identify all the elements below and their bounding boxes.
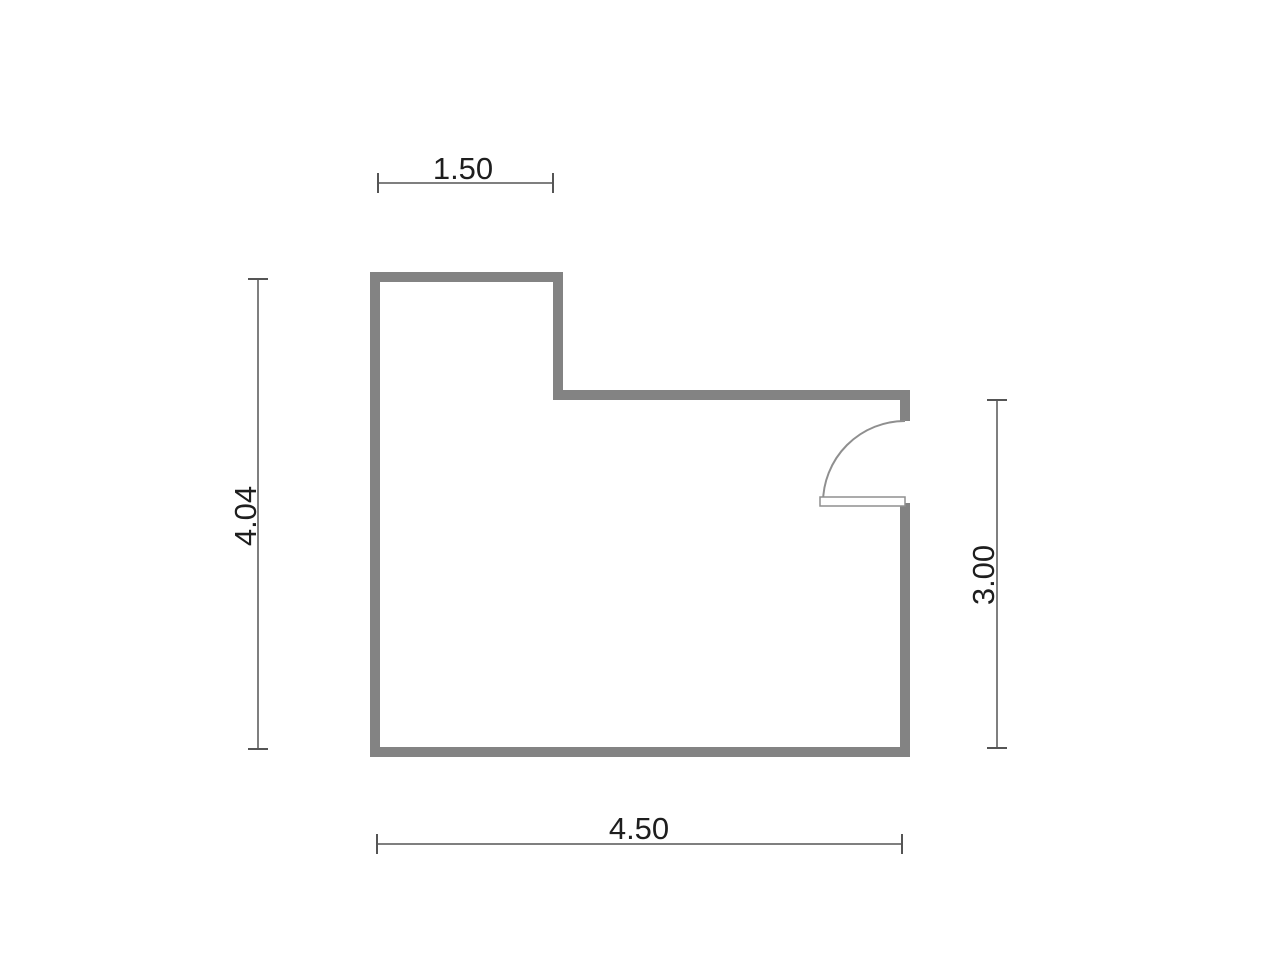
floorplan-canvas: 1.50 4.04 3.00 4.50 <box>0 0 1280 960</box>
dimension-top: 1.50 <box>378 151 553 193</box>
dimension-label-left: 4.04 <box>228 486 263 546</box>
floorplan-drawing: 1.50 4.04 3.00 4.50 <box>0 0 1280 960</box>
dimension-left: 4.04 <box>228 279 268 749</box>
dimension-label-bottom: 4.50 <box>609 811 669 846</box>
dimension-right: 3.00 <box>966 400 1007 748</box>
door-leaf <box>820 497 905 506</box>
dimension-bottom: 4.50 <box>377 811 902 854</box>
dimension-label-right: 3.00 <box>966 545 1001 605</box>
dimension-label-top: 1.50 <box>433 151 493 186</box>
door-swing-arc <box>823 421 905 503</box>
room-walls <box>375 277 905 752</box>
wall-outline <box>375 277 905 752</box>
door <box>820 421 905 506</box>
